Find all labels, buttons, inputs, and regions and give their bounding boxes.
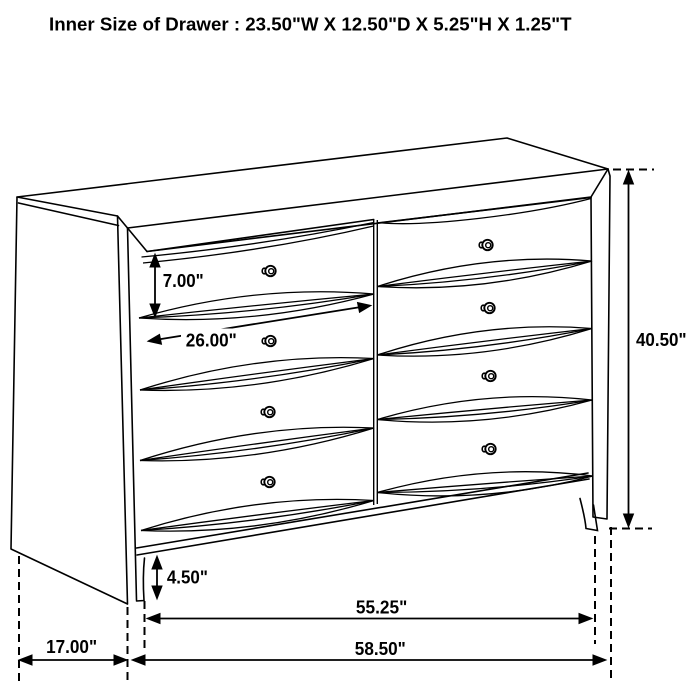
svg-text:58.50": 58.50" bbox=[355, 638, 406, 659]
svg-text:26.00": 26.00" bbox=[186, 330, 237, 351]
svg-text:40.50": 40.50" bbox=[636, 329, 687, 350]
svg-text:4.50": 4.50" bbox=[167, 567, 208, 588]
svg-text:17.00": 17.00" bbox=[46, 636, 97, 657]
svg-text:Inner Size of Drawer : 23.50"W: Inner Size of Drawer : 23.50"W X 12.50"D… bbox=[49, 14, 572, 35]
svg-text:55.25": 55.25" bbox=[356, 596, 407, 617]
svg-text:7.00": 7.00" bbox=[163, 270, 204, 291]
